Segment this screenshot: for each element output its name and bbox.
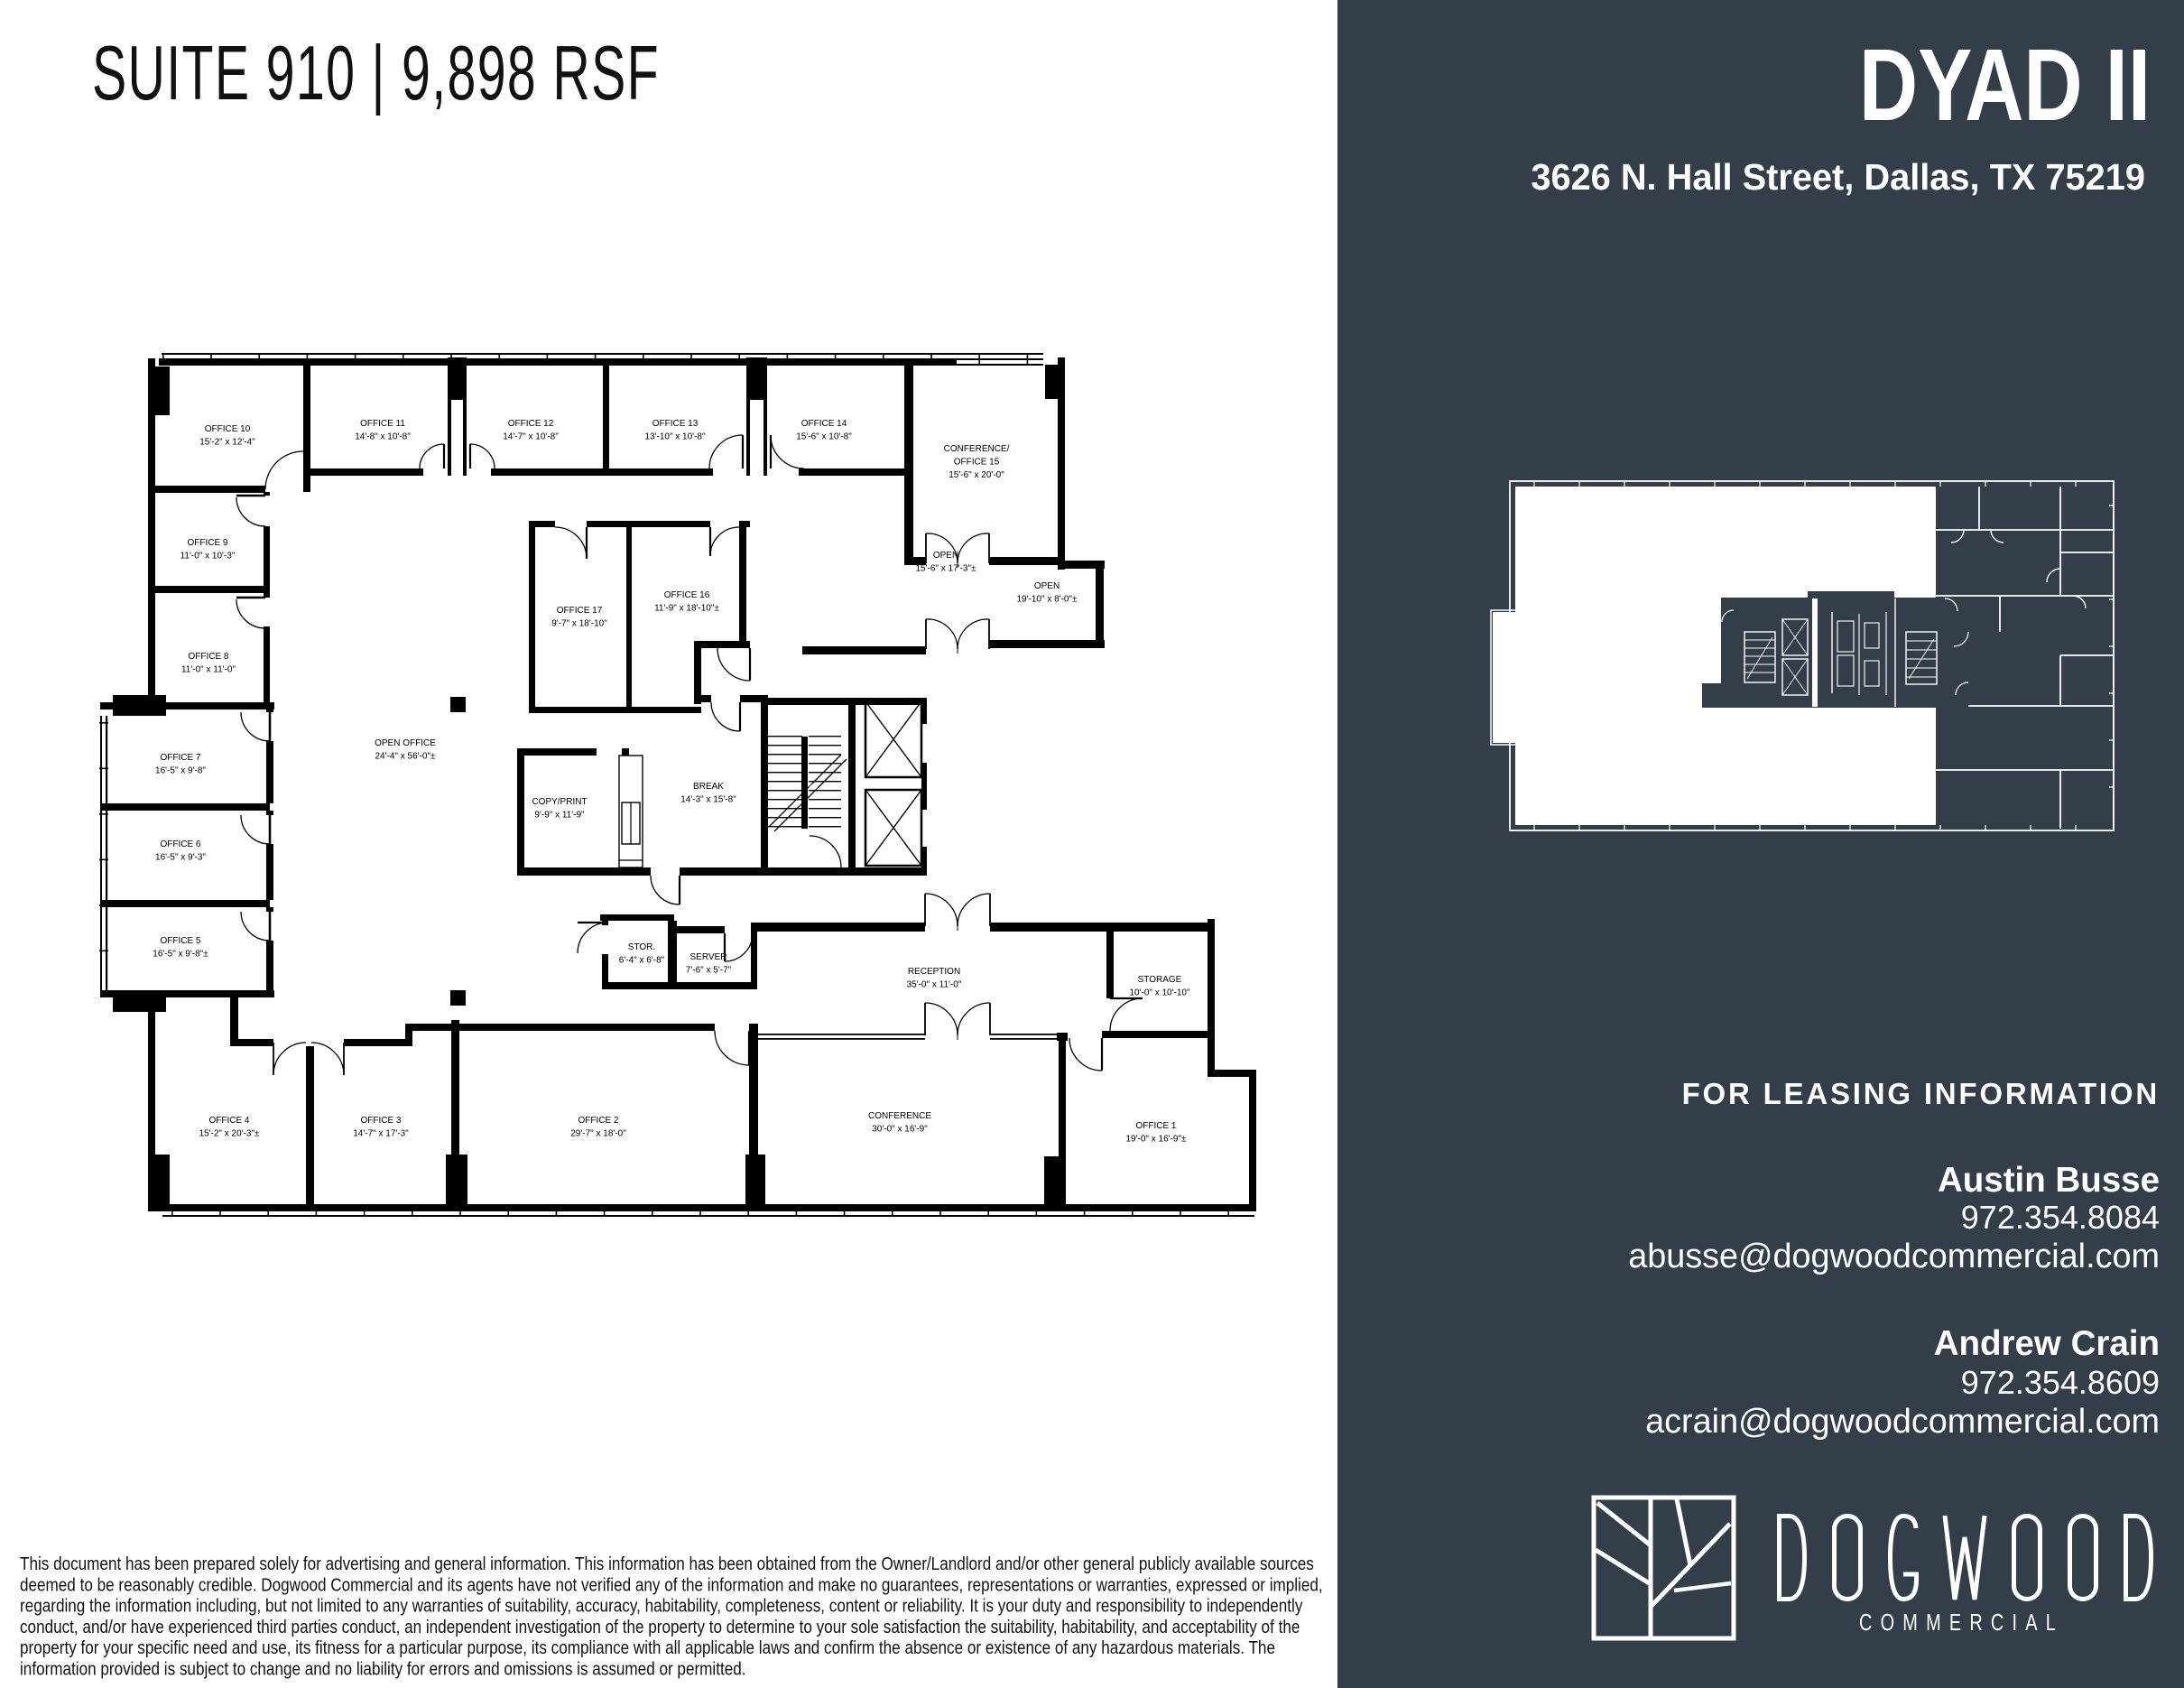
svg-text:14'-3" x 15'-8": 14'-3" x 15'-8": [680, 795, 736, 805]
svg-text:STORAGE: STORAGE: [1138, 975, 1182, 985]
svg-text:15'-2" x 12'-4": 15'-2" x 12'-4": [199, 438, 255, 448]
svg-text:OFFICE 1: OFFICE 1: [1135, 1121, 1176, 1131]
svg-text:15'-6" x 17'-3"±: 15'-6" x 17'-3"±: [916, 564, 977, 574]
svg-text:OFFICE 6: OFFICE 6: [160, 839, 200, 849]
svg-text:29'-7" x 18'-0": 29'-7" x 18'-0": [570, 1129, 626, 1139]
svg-text:6'-4" x 6'-8": 6'-4" x 6'-8": [619, 956, 665, 966]
svg-text:acrain@dogwoodcommercial.com: acrain@dogwoodcommercial.com: [1645, 1403, 2160, 1441]
svg-text:OFFICE 3: OFFICE 3: [360, 1116, 401, 1126]
svg-text:14'-8" x 10'-8": 14'-8" x 10'-8": [355, 432, 411, 442]
svg-text:OFFICE 9: OFFICE 9: [187, 538, 227, 548]
svg-text:14'-7" x 10'-8": 14'-7" x 10'-8": [503, 432, 559, 442]
svg-text:conduct, and/or have experienc: conduct, and/or have experienced third p…: [20, 1618, 1300, 1638]
svg-text:regarding the information incl: regarding the information including, but…: [20, 1596, 1303, 1617]
svg-text:OFFICE 14: OFFICE 14: [801, 419, 847, 429]
svg-text:16'-5" x 9'-3": 16'-5" x 9'-3": [155, 853, 206, 863]
svg-text:11'-9" x 18'-10"±: 11'-9" x 18'-10"±: [654, 604, 719, 614]
svg-text:information provided is subjec: information provided is subject to chang…: [20, 1659, 746, 1680]
svg-text:OFFICE 5: OFFICE 5: [160, 936, 200, 946]
svg-text:30'-0" x 16'-9": 30'-0" x 16'-9": [872, 1125, 928, 1135]
svg-text:13'-10" x 10'-8": 13'-10" x 10'-8": [644, 432, 706, 442]
svg-text:OFFICE 15: OFFICE 15: [954, 458, 1000, 468]
svg-text:Andrew Crain: Andrew Crain: [1934, 1324, 2160, 1363]
svg-text:15'-6" x 20'-0": 15'-6" x 20'-0": [949, 470, 1004, 480]
svg-text:OFFICE 10: OFFICE 10: [205, 424, 251, 434]
svg-text:11'-0" x 11'-0": 11'-0" x 11'-0": [181, 665, 236, 675]
svg-text:SERVER: SERVER: [690, 952, 727, 962]
svg-text:CONFERENCE: CONFERENCE: [868, 1111, 931, 1121]
svg-text:OFFICE 16: OFFICE 16: [664, 590, 710, 600]
svg-text:OPEN OFFICE: OPEN OFFICE: [375, 738, 436, 748]
svg-text:10'-0" x 10'-10": 10'-0" x 10'-10": [1129, 988, 1190, 998]
svg-text:OFFICE 7: OFFICE 7: [160, 753, 200, 763]
svg-text:COPY/PRINT: COPY/PRINT: [532, 797, 587, 807]
svg-text:16'-5" x 9'-8"±: 16'-5" x 9'-8"±: [153, 950, 208, 960]
svg-text:OPEN: OPEN: [933, 551, 958, 561]
svg-text:972.354.8084: 972.354.8084: [1961, 1199, 2160, 1236]
svg-text:15'-6" x 10'-8": 15'-6" x 10'-8": [796, 432, 852, 442]
svg-text:BREAK: BREAK: [693, 782, 724, 792]
svg-text:FOR LEASING INFORMATION: FOR LEASING INFORMATION: [1682, 1077, 2160, 1110]
svg-text:SUITE 910 | 9,898 RSF: SUITE 910 | 9,898 RSF: [92, 31, 660, 116]
svg-text:deemed to be reasonably credib: deemed to be reasonably credible. Dogwoo…: [20, 1575, 1323, 1596]
svg-text:OFFICE 12: OFFICE 12: [508, 419, 554, 429]
svg-text:OPEN: OPEN: [1034, 581, 1060, 591]
svg-text:24'-4" x 56'-0"±: 24'-4" x 56'-0"±: [375, 752, 437, 762]
svg-text:972.354.8609: 972.354.8609: [1961, 1364, 2160, 1401]
svg-text:16'-5" x 9'-8": 16'-5" x 9'-8": [155, 766, 206, 776]
svg-text:COMMERCIAL: COMMERCIAL: [1859, 1609, 2064, 1636]
svg-text:OFFICE 11: OFFICE 11: [360, 419, 405, 429]
svg-text:This document has been prepare: This document has been prepared solely f…: [20, 1554, 1314, 1575]
svg-text:abusse@dogwoodcommercial.com: abusse@dogwoodcommercial.com: [1628, 1238, 2160, 1275]
svg-text:35'-0" x 11'-0": 35'-0" x 11'-0": [907, 980, 962, 990]
svg-text:7'-6" x 5'-7": 7'-6" x 5'-7": [686, 966, 732, 976]
svg-text:11'-0" x 10'-3": 11'-0" x 10'-3": [180, 552, 236, 561]
svg-text:STOR.: STOR.: [628, 942, 655, 952]
svg-text:19'-10" x 8'-0"±: 19'-10" x 8'-0"±: [1017, 595, 1078, 605]
svg-text:property for your specific nee: property for your specific need and use,…: [20, 1638, 1275, 1659]
svg-text:CONFERENCE/: CONFERENCE/: [944, 444, 1010, 454]
svg-text:OFFICE 4: OFFICE 4: [208, 1116, 249, 1126]
svg-text:19'-0" x 16'-9"±: 19'-0" x 16'-9"±: [1126, 1135, 1188, 1145]
svg-text:Austin Busse: Austin Busse: [1938, 1161, 2160, 1200]
svg-text:9'-7" x 18'-10": 9'-7" x 18'-10": [551, 619, 607, 629]
svg-text:RECEPTION: RECEPTION: [908, 967, 960, 977]
svg-text:OFFICE 17: OFFICE 17: [557, 606, 603, 616]
svg-text:OFFICE 8: OFFICE 8: [188, 652, 228, 662]
svg-text:3626 N. Hall Street, Dallas, T: 3626 N. Hall Street, Dallas, TX 75219: [1531, 155, 2145, 198]
svg-text:14'-7" x 17'-3": 14'-7" x 17'-3": [353, 1129, 409, 1139]
svg-text:OFFICE 13: OFFICE 13: [652, 419, 699, 429]
svg-text:9'-9" x 11'-9": 9'-9" x 11'-9": [534, 811, 585, 821]
svg-text:DYAD II: DYAD II: [1859, 27, 2151, 142]
svg-text:OFFICE 2: OFFICE 2: [578, 1116, 618, 1126]
svg-text:15'-2" x 20'-3"±: 15'-2" x 20'-3"±: [199, 1129, 261, 1139]
